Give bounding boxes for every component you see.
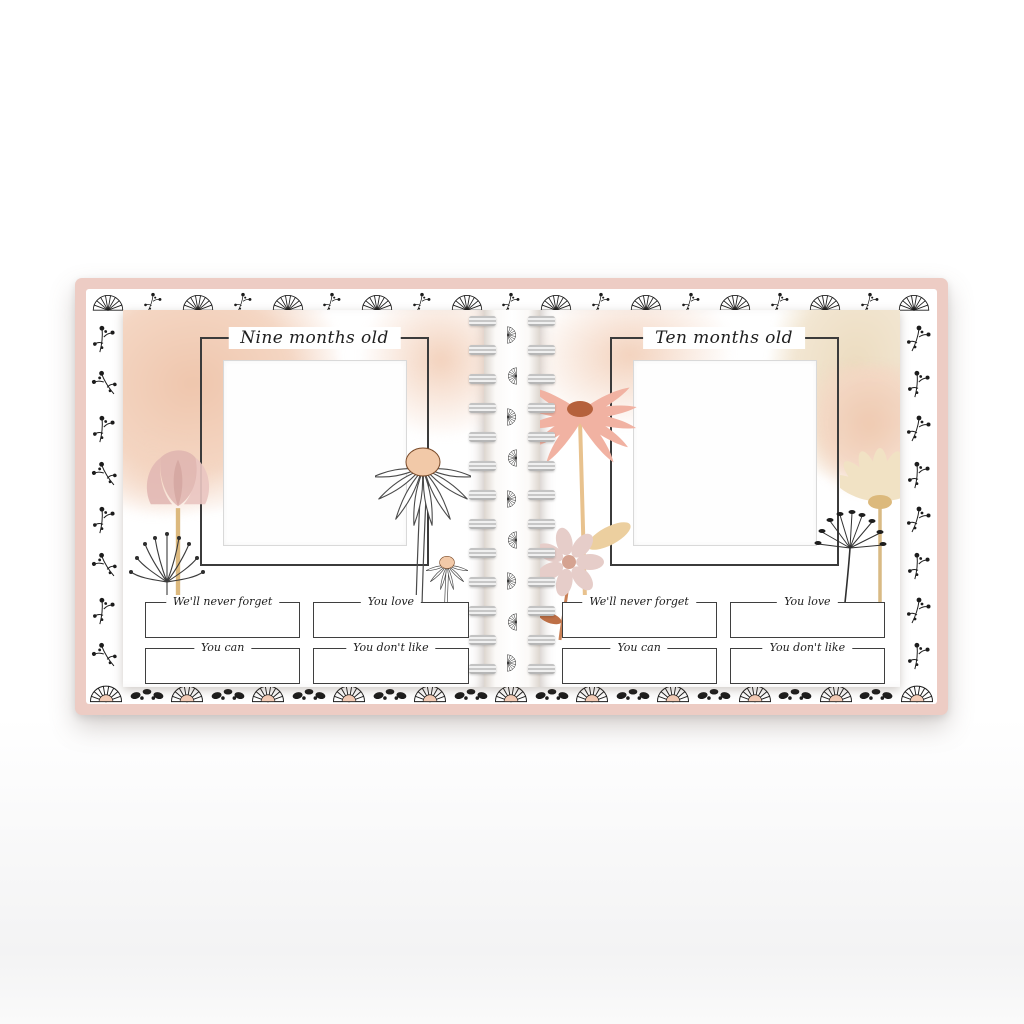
- field-label: You love: [361, 595, 421, 609]
- floral-sprig-icon: [903, 638, 935, 673]
- binding-coil: [469, 577, 496, 587]
- binding-coil: [528, 519, 555, 529]
- binding-coil: [469, 490, 496, 500]
- field-box-you-love: You love: [313, 602, 468, 638]
- fan-motif-icon: [506, 653, 518, 673]
- binding-coil: [469, 519, 496, 529]
- fan-motif-icon: [896, 291, 932, 313]
- field-label: You can: [610, 641, 667, 655]
- binding-coil: [469, 548, 496, 558]
- binding-coil: [528, 490, 555, 500]
- binding-coil: [528, 316, 555, 326]
- spiral-binding: [484, 310, 540, 687]
- fan-motif-icon: [506, 571, 518, 591]
- fan-motif-icon: [87, 682, 125, 704]
- floral-sprig-icon: [88, 547, 120, 582]
- fan-motif-icon: [506, 448, 518, 468]
- floral-sprig-icon: [88, 502, 120, 537]
- page-title-left: Nine months old: [228, 327, 401, 349]
- floral-sprig-icon: [88, 411, 120, 446]
- binding-coil: [528, 635, 555, 645]
- left-page: Nine months old: [123, 310, 484, 687]
- field-label: You love: [777, 595, 837, 609]
- field-label: You don't like: [346, 641, 435, 655]
- binding-coil: [528, 664, 555, 674]
- binding-coil: [469, 316, 496, 326]
- binding-coil: [528, 432, 555, 442]
- field-box-you-dont-like: You don't like: [313, 648, 468, 684]
- floral-sprig-icon: [906, 323, 932, 353]
- field-box-never-forget: We'll never forget: [562, 602, 717, 638]
- border-pattern-left: [88, 315, 120, 678]
- floral-sprig-icon: [906, 413, 932, 443]
- binding-coil: [469, 664, 496, 674]
- field-grid-left: We'll never forget You love You can You …: [145, 602, 469, 684]
- binding-coil: [528, 345, 555, 355]
- floral-sprig-icon: [88, 638, 120, 673]
- field-label: You don't like: [763, 641, 852, 655]
- binding-coil: [469, 635, 496, 645]
- floral-sprig-icon: [88, 320, 120, 355]
- floral-sprig-icon: [906, 504, 932, 534]
- fan-motif-icon: [506, 366, 518, 386]
- floral-sprig-icon: [88, 593, 120, 628]
- border-pattern-right: [903, 315, 935, 678]
- floral-sprig-icon: [906, 595, 932, 625]
- binding-coil: [469, 606, 496, 616]
- product-photo: Nine months old: [0, 0, 1024, 1024]
- photo-placeholder-right: [633, 360, 817, 546]
- binding-coil: [528, 606, 555, 616]
- right-page: Ten months old: [540, 310, 901, 687]
- binding-coil: [528, 548, 555, 558]
- field-box-you-can: You can: [562, 648, 717, 684]
- field-grid-right: We'll never forget You love You can You …: [562, 602, 886, 684]
- binding-coil: [528, 374, 555, 384]
- book-pages: Nine months old: [123, 310, 900, 687]
- floral-sprig-icon: [88, 456, 120, 491]
- fan-motif-icon: [90, 291, 126, 313]
- field-label: We'll never forget: [582, 595, 695, 609]
- binding-coil: [469, 432, 496, 442]
- binding-coil: [528, 403, 555, 413]
- floral-sprig-icon: [903, 366, 935, 401]
- field-box-you-dont-like: You don't like: [730, 648, 885, 684]
- fan-motif-icon: [506, 407, 518, 427]
- field-box-you-can: You can: [145, 648, 300, 684]
- field-box-you-love: You love: [730, 602, 885, 638]
- binding-coil: [469, 374, 496, 384]
- fan-motif-icon: [506, 530, 518, 550]
- field-box-never-forget: We'll never forget: [145, 602, 300, 638]
- fan-motif-icon: [506, 489, 518, 509]
- fan-motif-icon: [506, 325, 518, 345]
- binding-coil: [469, 403, 496, 413]
- binding-coil: [469, 345, 496, 355]
- floral-sprig-icon: [88, 365, 120, 400]
- memory-book-cover: Nine months old: [75, 278, 948, 715]
- field-label: We'll never forget: [166, 595, 279, 609]
- floral-sprig-icon: [903, 547, 935, 582]
- fan-motif-icon: [506, 612, 518, 632]
- patterned-border: Nine months old: [86, 289, 937, 704]
- binding-coil: [528, 461, 555, 471]
- binding-coil: [469, 461, 496, 471]
- spine-pattern: [501, 314, 523, 683]
- binding-coil: [528, 577, 555, 587]
- page-title-right: Ten months old: [643, 327, 805, 349]
- fan-motif-icon: [898, 682, 936, 704]
- field-label: You can: [194, 641, 251, 655]
- floral-sprig-icon: [903, 456, 935, 491]
